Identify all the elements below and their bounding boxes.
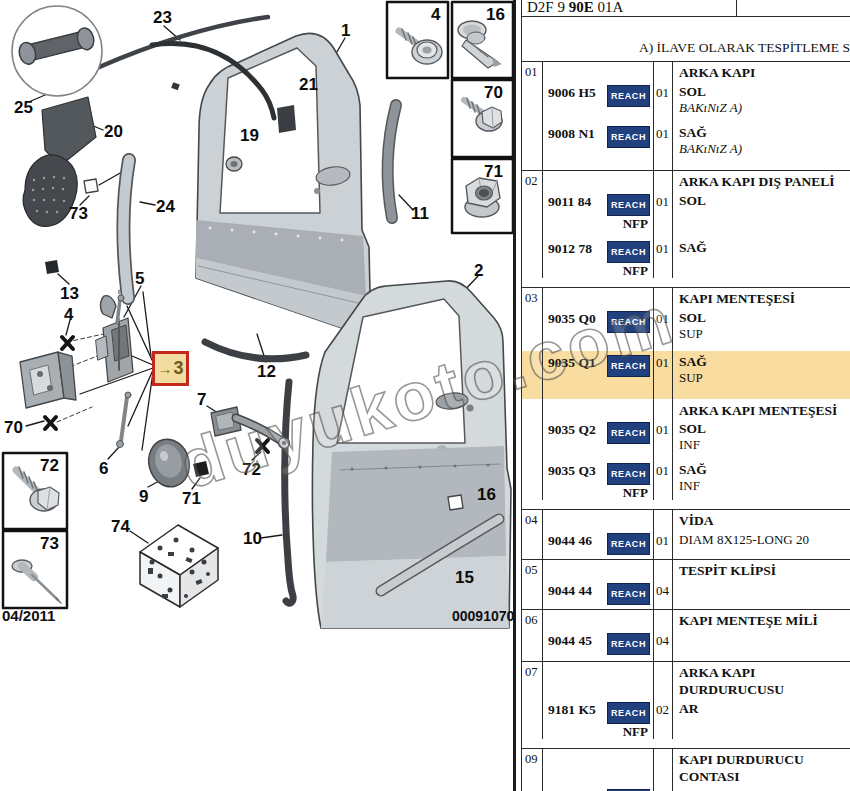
part-line: 9044 46REACH bbox=[548, 532, 650, 555]
table-group-02: 02ARKA KAPI DIŞ PANELİ9011 84REACHNFP01S… bbox=[522, 170, 850, 278]
group-title: ARKA KAPI DIŞ PANELİ bbox=[672, 173, 850, 190]
callout-24: 24 bbox=[156, 198, 175, 215]
part-cell: 9035 Q3REACHNFP bbox=[542, 462, 653, 500]
callout-arrow-icon: → bbox=[157, 360, 172, 377]
row-ref: 01 bbox=[525, 65, 538, 80]
callout-25: 25 bbox=[14, 99, 33, 116]
oval-disc-9 bbox=[143, 435, 194, 492]
row-ref: 06 bbox=[525, 613, 538, 628]
callout-19: 19 bbox=[240, 127, 259, 144]
table-row-part[interactable]: 9035 Q1REACH01SAĞSUP bbox=[522, 351, 850, 399]
part-spacer bbox=[542, 290, 653, 307]
callout-72: 72 bbox=[40, 457, 59, 474]
column-divider bbox=[542, 610, 543, 661]
desc-primary: SAĞ bbox=[679, 125, 850, 141]
part-cell: 9012 78REACHNFP bbox=[542, 240, 653, 278]
callout-12: 12 bbox=[257, 363, 276, 380]
qty-value: 01 bbox=[653, 310, 672, 342]
desc-primary: AR bbox=[679, 701, 850, 717]
column-divider bbox=[672, 560, 673, 609]
table-group-03: 03KAPI MENTEŞESİ9035 Q0REACH01SOLSUP9035… bbox=[522, 287, 850, 500]
part-cell: 9035 Q2REACH bbox=[542, 421, 653, 453]
group-title: KAPI DURDURUCU CONTASI bbox=[672, 751, 850, 785]
part-line: 9035 Q0REACH bbox=[548, 310, 650, 333]
reach-badge[interactable]: REACH bbox=[607, 355, 650, 377]
desc-primary: SAĞ bbox=[679, 354, 850, 370]
callout-10: 10 bbox=[243, 530, 262, 547]
group-title: KAPI MENTEŞE MİLİ bbox=[672, 612, 850, 629]
row-ref: 05 bbox=[525, 563, 538, 578]
part-number: 9012 78 bbox=[548, 240, 592, 257]
lower-hinge bbox=[20, 352, 76, 408]
reach-badge[interactable]: REACH bbox=[607, 126, 650, 148]
marker-square-16 bbox=[448, 495, 463, 510]
part-cell: 9011 84REACHNFP bbox=[542, 193, 653, 231]
revision-date: 04/2011 bbox=[2, 607, 55, 624]
ref-spacer bbox=[522, 701, 542, 739]
callout-9: 9 bbox=[139, 488, 148, 505]
desc-cell bbox=[672, 632, 850, 655]
part-cell: 9044 46REACH bbox=[542, 532, 653, 555]
row-ref: 07 bbox=[525, 665, 538, 680]
callout-20: 20 bbox=[104, 123, 123, 140]
callout-73: 73 bbox=[40, 535, 59, 552]
table-row-part[interactable]: 9044 44REACH04 bbox=[522, 582, 850, 605]
table-row-title: TESPİT KLİPSİ bbox=[522, 562, 850, 579]
reach-badge[interactable]: REACH bbox=[607, 422, 650, 444]
blanking-plug-21 bbox=[277, 105, 296, 133]
group-title: VİDA bbox=[672, 512, 850, 529]
ref-spacer bbox=[522, 462, 542, 500]
callout-5: 5 bbox=[135, 270, 144, 287]
ref-spacer bbox=[522, 193, 542, 231]
reach-badge[interactable]: REACH bbox=[607, 533, 650, 555]
row-ref: 09 bbox=[525, 752, 538, 767]
part-number: 9006 H5 bbox=[548, 84, 596, 101]
part-number: 9008 N1 bbox=[548, 125, 595, 142]
part-line: 9012 78REACH bbox=[548, 240, 650, 263]
table-group-06: 06KAPI MENTEŞE MİLİ9044 45REACH04 bbox=[522, 609, 850, 661]
part-spacer bbox=[542, 64, 653, 81]
column-divider bbox=[653, 662, 654, 739]
table-group-07: 07ARKA KAPI DURDURUCUSU9181 K5REACHNFP02… bbox=[522, 661, 850, 739]
table-row-part[interactable]: 9181 K5REACHNFP02AR bbox=[522, 701, 850, 739]
desc-cell: SOL bbox=[672, 193, 850, 231]
ref-spacer bbox=[522, 582, 542, 605]
part-cell: 9008 N1REACH bbox=[542, 125, 653, 157]
part-cell: 9035 Q0REACH bbox=[542, 310, 653, 342]
qty-value: 01 bbox=[653, 193, 672, 231]
callout-4: 4 bbox=[431, 6, 440, 23]
desc-cell: SOLBAKıNıZ A) bbox=[672, 84, 850, 116]
qty-value: 01 bbox=[653, 240, 672, 278]
part-spacer bbox=[542, 512, 653, 529]
table-row-part[interactable]: 9012 78REACHNFP01SAĞ bbox=[522, 240, 850, 278]
qty-spacer bbox=[653, 512, 672, 529]
clip-on-weatherstrip bbox=[171, 82, 180, 90]
column-divider bbox=[542, 662, 543, 739]
part-number: 9035 Q0 bbox=[548, 310, 596, 327]
exploded-parts-diagram: 1245679101112131516192021232425707172737… bbox=[0, 0, 515, 630]
desc-cell: SOLINF bbox=[672, 421, 850, 453]
qty-spacer bbox=[653, 173, 672, 190]
ref-spacer bbox=[522, 421, 542, 453]
part-line: 9006 H5REACH bbox=[548, 84, 650, 107]
header-note: A) İLAVE OLARAK TESPİTLEME S bbox=[522, 17, 850, 62]
column-divider bbox=[542, 171, 543, 278]
qty-value: 01 bbox=[653, 462, 672, 500]
ref-spacer bbox=[522, 532, 542, 555]
table-row-part[interactable]: 9011 84REACHNFP01SOL bbox=[522, 193, 850, 231]
column-divider bbox=[542, 62, 543, 170]
column-divider bbox=[672, 749, 673, 791]
lower-molding-12 bbox=[205, 342, 306, 359]
callout-74: 74 bbox=[111, 518, 130, 535]
table-row-title: ARKA KAPI bbox=[522, 64, 850, 81]
column-divider bbox=[672, 171, 673, 278]
column-divider bbox=[542, 560, 543, 609]
door-check-strap bbox=[211, 407, 290, 449]
part-line: 9044 45REACH bbox=[548, 632, 650, 655]
qty-spacer bbox=[653, 562, 672, 579]
part-line: 9035 Q3REACH bbox=[548, 462, 650, 485]
table-row-title: VİDA bbox=[522, 512, 850, 529]
reach-badge[interactable]: REACH bbox=[607, 702, 650, 724]
desc-primary: SOL bbox=[679, 310, 850, 326]
desc-cell: SAĞBAKıNıZ A) bbox=[672, 125, 850, 157]
desc-cell: SOLSUP bbox=[672, 310, 850, 342]
table-row-part[interactable]: 9044 46REACH01DIAM 8X125-LONG 20 bbox=[522, 532, 850, 555]
reach-badge[interactable]: REACH bbox=[607, 311, 650, 333]
desc-secondary: SUP bbox=[679, 370, 850, 386]
group-title: TESPİT KLİPSİ bbox=[672, 562, 850, 579]
qty-spacer bbox=[653, 751, 672, 785]
reach-badge[interactable]: REACH bbox=[607, 194, 650, 216]
reach-badge[interactable]: REACH bbox=[607, 633, 650, 655]
fastener-kit-74 bbox=[140, 525, 218, 607]
callout-2: 2 bbox=[474, 262, 483, 279]
part-cell: 9035 Q1REACH bbox=[542, 354, 653, 386]
qty-spacer bbox=[653, 612, 672, 629]
part-number: 9011 84 bbox=[548, 193, 591, 210]
callout-15: 15 bbox=[455, 569, 474, 586]
marker-square-71 bbox=[193, 461, 209, 477]
ref-spacer bbox=[522, 84, 542, 116]
desc-cell: AR bbox=[672, 701, 850, 739]
upper-hinge bbox=[96, 296, 133, 382]
part-cell: 9044 45REACH bbox=[542, 632, 653, 655]
table-row-part[interactable]: 9035 Q2REACH01SOLINF bbox=[522, 421, 850, 453]
part-spacer bbox=[542, 562, 653, 579]
panel-divider bbox=[513, 0, 516, 791]
marker-square-73 bbox=[84, 179, 98, 193]
table-group-05: 05TESPİT KLİPSİ9044 44REACH04 bbox=[522, 559, 850, 609]
desc-secondary: DIAM 8X125-LONG 20 bbox=[679, 532, 850, 548]
ref-spacer bbox=[522, 402, 542, 419]
table-row-title: KAPI DURDURUCU CONTASI bbox=[522, 751, 850, 785]
callout-13: 13 bbox=[60, 285, 79, 302]
desc-cell: SAĞINF bbox=[672, 462, 850, 500]
qty-value: 04 bbox=[653, 582, 672, 605]
qty-value: 01 bbox=[653, 421, 672, 453]
reach-badge[interactable]: REACH bbox=[607, 463, 650, 485]
catalog-code: D2F 9 90E 01A bbox=[522, 0, 737, 16]
marker-square-13 bbox=[45, 260, 59, 274]
desc-cell bbox=[672, 582, 850, 605]
callout-72: 72 bbox=[242, 461, 261, 478]
table-row-part[interactable]: 9035 Q3REACHNFP01SAĞINF bbox=[522, 462, 850, 500]
qty-spacer bbox=[653, 402, 672, 419]
callout-11: 11 bbox=[411, 205, 429, 222]
table-row-part[interactable]: 9035 Q0REACH01SOLSUP bbox=[522, 310, 850, 342]
group-title: ARKA KAPI DURDURUCUSU bbox=[672, 664, 850, 698]
callout-1: 1 bbox=[341, 22, 350, 39]
drawing-number: 00091070 bbox=[452, 608, 514, 624]
nfp-label: NFP bbox=[548, 485, 650, 500]
table-group-09: 09KAPI DURDURUCU CONTASI9025 T5REACH02 bbox=[522, 748, 850, 791]
part-number: 9035 Q1 bbox=[548, 354, 596, 371]
desc-cell: DIAM 8X125-LONG 20 bbox=[672, 532, 850, 555]
callout-23: 23 bbox=[153, 9, 172, 26]
part-spacer bbox=[542, 664, 653, 698]
table-row-part[interactable]: 9044 45REACH04 bbox=[522, 632, 850, 655]
part-line: 9044 44REACH bbox=[548, 582, 650, 605]
part-line: 9035 Q1REACH bbox=[548, 354, 650, 377]
ref-spacer bbox=[522, 354, 542, 386]
part-cell: 9181 K5REACHNFP bbox=[542, 701, 653, 739]
callout-16: 16 bbox=[486, 6, 505, 23]
table-row-part[interactable]: 9006 H5REACH01SOLBAKıNıZ A) bbox=[522, 84, 850, 116]
nfp-label: NFP bbox=[548, 216, 650, 231]
desc-secondary: SUP bbox=[679, 326, 850, 342]
desc-note: BAKıNıZ A) bbox=[679, 141, 850, 157]
part-line: 9011 84REACH bbox=[548, 193, 650, 216]
callout-4: 4 bbox=[64, 306, 73, 323]
qty-spacer bbox=[653, 64, 672, 81]
table-row-title: ARKA KAPI DIŞ PANELİ bbox=[522, 173, 850, 190]
callout-16: 16 bbox=[477, 486, 496, 503]
column-divider bbox=[542, 749, 543, 791]
reach-badge[interactable]: REACH bbox=[607, 583, 650, 605]
desc-note: BAKıNıZ A) bbox=[679, 100, 850, 116]
nfp-label: NFP bbox=[548, 724, 650, 739]
parts-table-body: 01ARKA KAPI9006 H5REACH01SOLBAKıNıZ A)90… bbox=[522, 62, 850, 791]
desc-cell: SAĞSUP bbox=[672, 354, 850, 386]
callout-70: 70 bbox=[4, 419, 23, 436]
callout-6: 6 bbox=[99, 460, 108, 477]
highlighted-callout-3[interactable]: →3 bbox=[152, 351, 189, 386]
column-divider bbox=[653, 171, 654, 278]
column-divider bbox=[542, 510, 543, 559]
qty-value: 01 bbox=[653, 84, 672, 116]
part-spacer bbox=[542, 402, 653, 419]
group-title: KAPI MENTEŞESİ bbox=[672, 290, 850, 307]
reach-badge[interactable]: REACH bbox=[607, 85, 650, 107]
part-cell: 9006 H5REACH bbox=[542, 84, 653, 116]
qty-value: 04 bbox=[653, 632, 672, 655]
code-prefix: D2F 9 bbox=[527, 0, 569, 15]
part-line: 9181 K5REACH bbox=[548, 701, 650, 724]
part-spacer bbox=[542, 612, 653, 629]
part-number: 9044 46 bbox=[548, 532, 592, 549]
ref-spacer bbox=[522, 632, 542, 655]
column-divider bbox=[653, 62, 654, 170]
grab-handle-inset bbox=[12, 6, 102, 96]
part-line: 9035 Q2REACH bbox=[548, 421, 650, 444]
column-divider bbox=[672, 610, 673, 661]
column-divider bbox=[653, 610, 654, 661]
callout-3-number: 3 bbox=[173, 358, 183, 379]
group-subtitle: ARKA KAPI MENTEŞESİ bbox=[672, 402, 850, 419]
rear-door-panel bbox=[196, 33, 371, 338]
column-divider bbox=[672, 288, 673, 500]
table-row-title: KAPI MENTEŞE MİLİ bbox=[522, 612, 850, 629]
column-divider bbox=[653, 749, 654, 791]
column-divider bbox=[542, 288, 543, 500]
column-divider bbox=[653, 288, 654, 500]
part-line: 9008 N1REACH bbox=[548, 125, 650, 148]
callout-71: 71 bbox=[182, 490, 201, 507]
qty-value: 01 bbox=[653, 354, 672, 386]
callout-73: 73 bbox=[69, 205, 88, 222]
code-bold: 90E bbox=[569, 0, 594, 15]
part-number: 9035 Q2 bbox=[548, 421, 596, 438]
part-number: 9044 44 bbox=[548, 582, 592, 599]
table-row-subtitle: ARKA KAPI MENTEŞESİ bbox=[522, 402, 850, 419]
reach-badge[interactable]: REACH bbox=[607, 241, 650, 263]
desc-primary: SAĞ bbox=[679, 462, 850, 478]
table-row-part[interactable]: 9008 N1REACH01SAĞBAKıNıZ A) bbox=[522, 125, 850, 157]
callout-21: 21 bbox=[299, 76, 318, 93]
part-number: 9044 45 bbox=[548, 632, 592, 649]
desc-primary: SOL bbox=[679, 193, 850, 209]
qty-value: 02 bbox=[653, 701, 672, 739]
column-divider bbox=[672, 510, 673, 559]
ref-spacer bbox=[522, 240, 542, 278]
part-spacer bbox=[542, 751, 653, 785]
nfp-label: NFP bbox=[548, 263, 650, 278]
column-divider bbox=[653, 510, 654, 559]
desc-secondary: INF bbox=[679, 437, 850, 453]
callout-70: 70 bbox=[484, 84, 503, 101]
qty-value: 01 bbox=[653, 125, 672, 157]
part-number: 9035 Q3 bbox=[548, 462, 596, 479]
ref-spacer bbox=[522, 125, 542, 157]
table-group-04: 04VİDA9044 46REACH01DIAM 8X125-LONG 20 bbox=[522, 509, 850, 559]
table-row-title: KAPI MENTEŞESİ bbox=[522, 290, 850, 307]
page-header: D2F 9 90E 01A bbox=[522, 0, 850, 17]
desc-primary: SOL bbox=[679, 84, 850, 100]
part-spacer bbox=[542, 173, 653, 190]
column-divider bbox=[672, 662, 673, 739]
row-ref: 02 bbox=[525, 174, 538, 189]
desc-primary: SAĞ bbox=[679, 240, 850, 256]
pillar-trim-24 bbox=[124, 160, 129, 298]
qty-spacer bbox=[653, 290, 672, 307]
grommet-19 bbox=[226, 157, 242, 171]
part-number: 9181 K5 bbox=[548, 701, 596, 718]
qty-value: 01 bbox=[653, 532, 672, 555]
door-edge-seal-10 bbox=[285, 382, 293, 603]
desc-primary: SOL bbox=[679, 421, 850, 437]
row-ref: 04 bbox=[525, 513, 538, 528]
ref-spacer bbox=[522, 310, 542, 342]
column-divider bbox=[653, 560, 654, 609]
table-group-01: 01ARKA KAPI9006 H5REACH01SOLBAKıNıZ A)90… bbox=[522, 62, 850, 170]
callout-7: 7 bbox=[197, 391, 206, 408]
part-cell: 9044 44REACH bbox=[542, 582, 653, 605]
callout-71: 71 bbox=[484, 163, 503, 180]
group-title: ARKA KAPI bbox=[672, 64, 850, 81]
qty-spacer bbox=[653, 664, 672, 698]
row-ref: 03 bbox=[525, 291, 538, 306]
desc-secondary: INF bbox=[679, 478, 850, 494]
table-row-title: ARKA KAPI DURDURUCUSU bbox=[522, 664, 850, 698]
column-divider bbox=[672, 62, 673, 170]
desc-cell: SAĞ bbox=[672, 240, 850, 278]
inset-box-nut-71 bbox=[452, 159, 513, 233]
inset-box-bolt-70 bbox=[452, 80, 513, 157]
code-suffix: 01A bbox=[594, 0, 624, 15]
